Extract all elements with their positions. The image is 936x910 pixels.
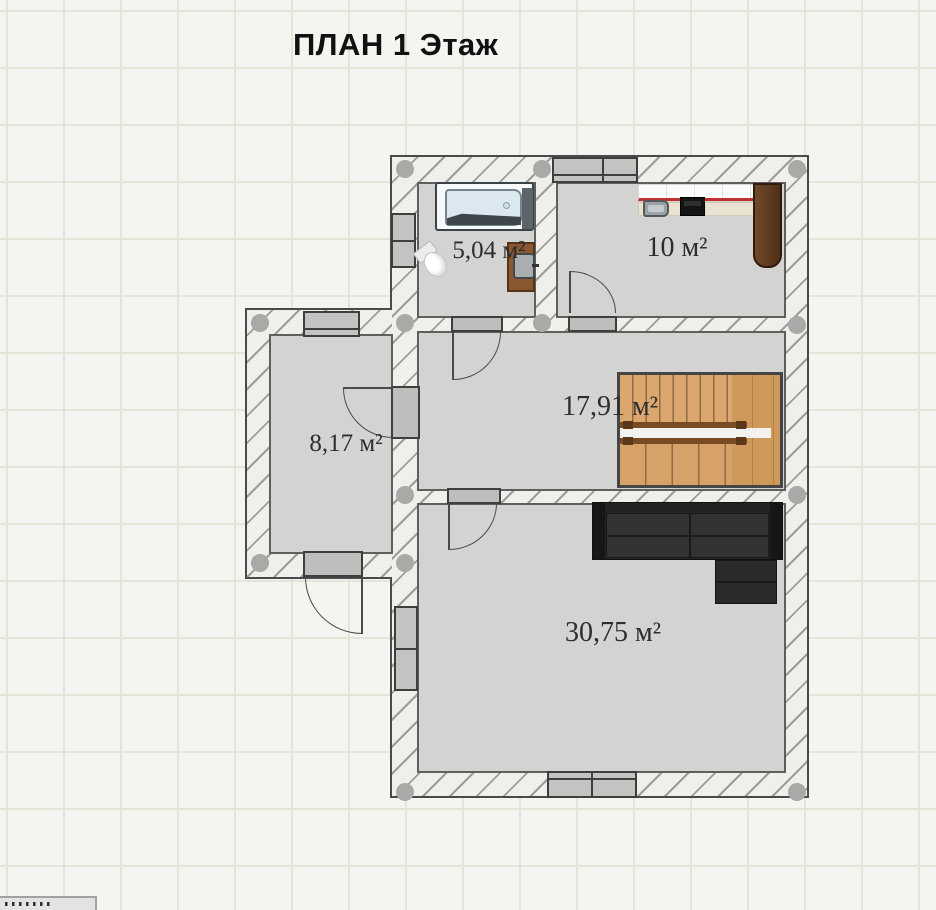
sofa-armrest-left bbox=[593, 503, 605, 559]
column bbox=[396, 554, 414, 572]
corner-sofa[interactable] bbox=[592, 502, 783, 602]
stair-flight-lower bbox=[620, 444, 732, 485]
window-annex-top[interactable] bbox=[303, 311, 360, 337]
dots-icon bbox=[5, 902, 51, 906]
entrance-door-swing bbox=[305, 577, 362, 634]
area-label-hall: 17,91 м² bbox=[562, 391, 658, 423]
stove[interactable] bbox=[680, 197, 705, 216]
handrail-post bbox=[736, 421, 746, 429]
column bbox=[533, 314, 551, 332]
column bbox=[251, 554, 269, 572]
kitchen-sink[interactable] bbox=[643, 200, 669, 217]
bathtub-faucet-deck bbox=[522, 188, 533, 229]
entrance-door-panel[interactable] bbox=[303, 551, 363, 577]
area-label-kitchen: 10 м² bbox=[646, 232, 707, 264]
staircase[interactable] bbox=[617, 372, 783, 488]
column bbox=[251, 314, 269, 332]
column bbox=[396, 314, 414, 332]
sofa-chaise bbox=[715, 560, 777, 604]
window-sill bbox=[554, 174, 636, 176]
column bbox=[396, 160, 414, 178]
plan-title: ПЛАН 1 Этаж bbox=[293, 27, 498, 63]
kitchen-sink-basin bbox=[648, 205, 664, 212]
faucet-icon bbox=[532, 264, 539, 267]
bathroom-door-panel[interactable] bbox=[451, 316, 503, 332]
column bbox=[788, 783, 806, 801]
bathtub[interactable] bbox=[435, 182, 534, 231]
window-divider bbox=[393, 240, 414, 242]
area-label-annex: 8,17 м² bbox=[309, 430, 382, 458]
fridge-cabinet[interactable] bbox=[753, 183, 782, 268]
window-sill bbox=[305, 328, 358, 330]
area-label-bathroom: 5,04 м² bbox=[452, 237, 525, 265]
handrail bbox=[620, 438, 747, 444]
window-left-lower[interactable] bbox=[394, 606, 418, 691]
living-door-panel[interactable] bbox=[447, 488, 501, 504]
column bbox=[533, 160, 551, 178]
stair-gap bbox=[620, 428, 771, 438]
toolbar-fragment[interactable] bbox=[0, 896, 97, 910]
bathtub-drain bbox=[503, 202, 510, 209]
window-bottom[interactable] bbox=[547, 771, 637, 798]
column bbox=[396, 486, 414, 504]
sofa-seat bbox=[690, 513, 769, 558]
sofa-seat bbox=[606, 513, 690, 558]
window-divider bbox=[396, 648, 416, 650]
stove-detail bbox=[684, 201, 701, 206]
window-sill bbox=[549, 778, 635, 780]
column bbox=[788, 486, 806, 504]
sofa-armrest-right bbox=[770, 503, 782, 559]
kitchen-door-panel[interactable] bbox=[568, 316, 617, 332]
window-divider bbox=[602, 159, 604, 181]
area-label-living: 30,75 м² bbox=[565, 617, 661, 649]
column bbox=[396, 783, 414, 801]
window-divider bbox=[591, 773, 593, 796]
window-top[interactable] bbox=[552, 157, 638, 183]
handrail-post bbox=[736, 437, 746, 445]
annex-door-panel[interactable] bbox=[391, 386, 420, 439]
handrail-post bbox=[623, 437, 633, 445]
column bbox=[788, 160, 806, 178]
floor-plan-canvas: ПЛАН 1 Этаж bbox=[0, 0, 936, 910]
column bbox=[788, 316, 806, 334]
